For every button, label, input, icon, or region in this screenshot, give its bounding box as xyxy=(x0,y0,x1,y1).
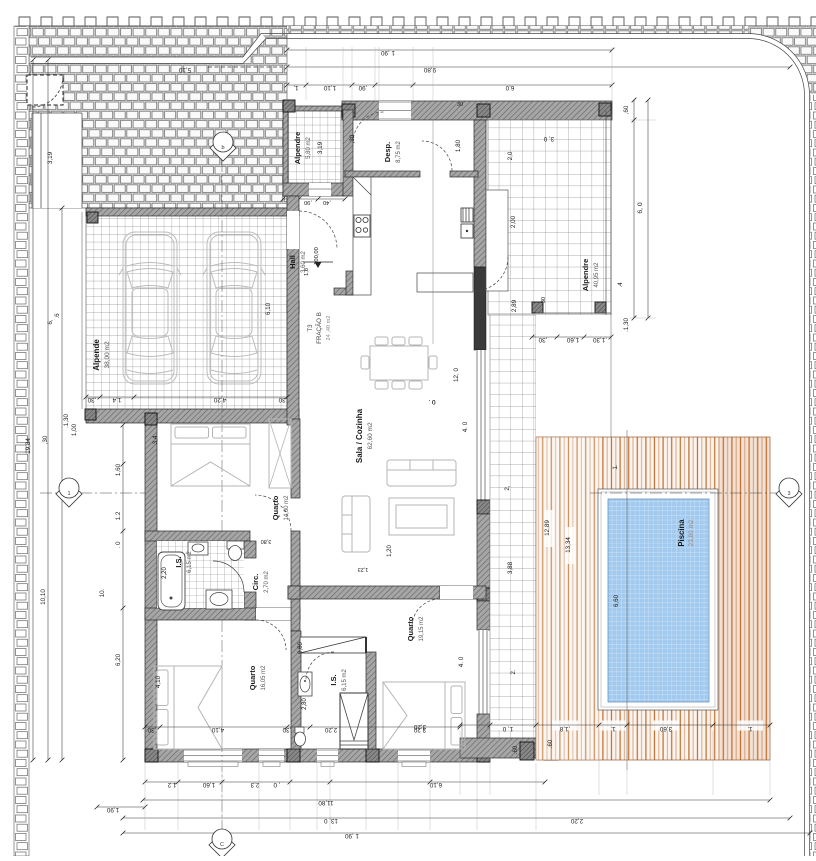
svg-text:4,10: 4,10 xyxy=(211,726,224,733)
svg-text:12,89: 12,89 xyxy=(544,520,551,536)
svg-text:.1,30: .1,30 xyxy=(623,318,630,333)
svg-text:Quarto: Quarto xyxy=(248,665,257,690)
svg-text:,30: ,30 xyxy=(278,396,287,403)
svg-text:Circ.: Circ. xyxy=(251,574,260,591)
svg-text:.60: .60 xyxy=(548,739,554,748)
svg-text:,30: ,30 xyxy=(87,396,96,403)
svg-text:3,4: 3,4 xyxy=(152,435,159,444)
svg-text:1: 1 xyxy=(67,491,70,497)
svg-text:Piscina: Piscina xyxy=(677,519,686,547)
svg-text:6,10: 6,10 xyxy=(429,781,442,788)
svg-text:30: 30 xyxy=(541,297,547,303)
svg-text:.4: .4 xyxy=(617,282,624,288)
svg-text:2,80: 2,80 xyxy=(302,698,308,710)
svg-text:1 ,90: 1 ,90 xyxy=(381,49,396,56)
svg-text:24 ,40 m2: 24 ,40 m2 xyxy=(326,316,332,341)
svg-text:Quarto: Quarto xyxy=(406,616,415,641)
svg-text:4. 0: 4. 0 xyxy=(458,656,465,667)
svg-text:T3: T3 xyxy=(307,324,314,332)
svg-text:1,4: 1,4 xyxy=(112,396,121,403)
svg-text:1,: 1, xyxy=(293,84,299,91)
svg-text:3,20: 3,20 xyxy=(413,723,426,730)
svg-text:,90: ,90 xyxy=(304,199,312,205)
svg-text:6,0: 6,0 xyxy=(505,84,514,91)
svg-text:3: 3 xyxy=(787,491,790,497)
svg-text:2,0: 2,0 xyxy=(507,151,514,160)
svg-text:1.2: 1.2 xyxy=(115,511,122,520)
svg-text:12, 0: 12, 0 xyxy=(453,368,460,383)
svg-text:2,20: 2,20 xyxy=(162,567,168,579)
svg-text:3,19: 3,19 xyxy=(317,141,324,154)
svg-text:19,84: 19,84 xyxy=(25,438,32,454)
svg-text:23,80 m2: 23,80 m2 xyxy=(688,519,695,546)
svg-text:1, 0: 1, 0 xyxy=(502,725,513,732)
svg-text:Alpende: Alpende xyxy=(92,339,101,371)
svg-text:6, 0: 6, 0 xyxy=(637,202,644,214)
svg-text:6,15 m2: 6,15 m2 xyxy=(187,551,193,573)
svg-text:,30: ,30 xyxy=(350,134,356,143)
svg-text:13,34: 13,34 xyxy=(565,537,572,553)
svg-text:Quarto: Quarto xyxy=(271,495,280,520)
svg-text:1,20: 1,20 xyxy=(387,545,393,557)
svg-text:5,10: 5,10 xyxy=(178,66,191,73)
svg-text:40,95 m2: 40,95 m2 xyxy=(594,262,600,288)
svg-text:3, 0: 3, 0 xyxy=(543,135,554,142)
svg-text:,90: ,90 xyxy=(358,84,367,91)
svg-text:Alpendre: Alpendre xyxy=(293,132,302,165)
svg-text:1,60: 1,60 xyxy=(202,781,215,788)
svg-text:Desp.: Desp. xyxy=(383,142,392,162)
svg-text:Alpendre: Alpendre xyxy=(581,259,590,292)
svg-text:19,15 m2: 19,15 m2 xyxy=(419,616,425,642)
svg-text:13, 0: 13, 0 xyxy=(324,817,339,824)
svg-text:0,60: 0,60 xyxy=(298,642,304,654)
svg-text:1,90: 1,90 xyxy=(106,806,119,813)
svg-text:1 ,90: 1 ,90 xyxy=(345,832,360,839)
svg-text:6,10: 6,10 xyxy=(265,302,272,315)
svg-text:1,60: 1,60 xyxy=(566,336,579,343)
svg-text:3,60: 3,60 xyxy=(659,725,672,732)
svg-text:4. 0: 4. 0 xyxy=(462,421,469,432)
svg-text:62,60 m2: 62,60 m2 xyxy=(367,422,374,449)
svg-text:.1,30: .1,30 xyxy=(63,414,70,429)
svg-text:6,15 m2: 6,15 m2 xyxy=(342,669,348,691)
svg-text:5,80 m2: 5,80 m2 xyxy=(306,137,312,159)
svg-text:Hall: Hall xyxy=(288,255,297,269)
svg-text:,30: ,30 xyxy=(538,336,547,343)
svg-text:2,3: 2,3 xyxy=(250,781,259,788)
svg-text:FRAÇÃO B: FRAÇÃO B xyxy=(316,312,323,344)
svg-text:10.: 10. xyxy=(99,588,106,597)
svg-text:1,6: 1,6 xyxy=(304,268,310,276)
svg-text:2,: 2, xyxy=(504,485,511,491)
svg-text:0 .: 0 . xyxy=(428,398,435,405)
svg-text:2,00: 2,00 xyxy=(510,215,517,228)
svg-text:2,20: 2,20 xyxy=(570,817,583,824)
svg-text:C: C xyxy=(220,842,224,848)
svg-text:1,60: 1,60 xyxy=(115,463,122,476)
svg-text:1.: 1. xyxy=(747,725,753,732)
svg-text:16,05 m2: 16,05 m2 xyxy=(261,665,267,691)
svg-text:6,20: 6,20 xyxy=(115,653,122,666)
svg-text:2,20: 2,20 xyxy=(324,726,337,733)
svg-text:38,00 m2: 38,00 m2 xyxy=(104,341,111,368)
svg-text:. 0: . 0 xyxy=(115,541,122,548)
svg-text:2,70 m2: 2,70 m2 xyxy=(264,571,270,593)
svg-text:30: 30 xyxy=(457,102,463,108)
svg-text:6,: 6, xyxy=(47,319,54,325)
svg-text:,1,8: ,1,8 xyxy=(559,725,570,732)
svg-text:, 0: , 0 xyxy=(273,781,280,788)
svg-text:I.S.: I.S. xyxy=(329,674,338,685)
svg-text:.60: .60 xyxy=(513,745,519,754)
svg-text:11,80: 11,80 xyxy=(318,799,334,806)
svg-text:3,88: 3,88 xyxy=(507,561,514,574)
svg-text:,60: ,60 xyxy=(623,105,630,114)
svg-text:9,80: 9,80 xyxy=(423,66,436,73)
svg-text:1.: 1. xyxy=(612,464,619,470)
svg-text:1.2: 1.2 xyxy=(167,781,176,788)
svg-text:8,75 m2: 8,75 m2 xyxy=(396,141,402,163)
svg-text:1,10: 1,10 xyxy=(323,84,336,91)
svg-text:3,80: 3,80 xyxy=(261,538,272,544)
svg-text:b: b xyxy=(221,145,224,151)
svg-text:,30: ,30 xyxy=(42,435,49,444)
svg-text:,1,30: ,1,30 xyxy=(593,336,608,343)
svg-text:6,60: 6,60 xyxy=(613,594,620,607)
svg-text:.6: .6 xyxy=(54,313,61,319)
svg-text:2,89: 2,89 xyxy=(511,299,518,312)
svg-text:,30: ,30 xyxy=(147,726,156,733)
svg-text:4,10: 4,10 xyxy=(155,675,162,688)
svg-text:14,60 m2: 14,60 m2 xyxy=(284,495,290,521)
svg-text:10,10: 10,10 xyxy=(40,589,47,605)
svg-text:1,80: 1,80 xyxy=(455,139,462,152)
svg-text:1,23: 1,23 xyxy=(358,566,369,572)
svg-text:2.: 2. xyxy=(510,669,517,675)
svg-text:1.: 1. xyxy=(610,725,616,732)
svg-text:I.S.: I.S. xyxy=(174,556,183,567)
svg-text:Sala / Cozinha: Sala / Cozinha xyxy=(355,408,364,463)
svg-text:,40: ,40 xyxy=(323,199,331,205)
svg-text:4,20: 4,20 xyxy=(213,396,226,403)
svg-text:,30: ,30 xyxy=(282,726,291,733)
svg-text:1,00: 1,00 xyxy=(71,423,78,436)
